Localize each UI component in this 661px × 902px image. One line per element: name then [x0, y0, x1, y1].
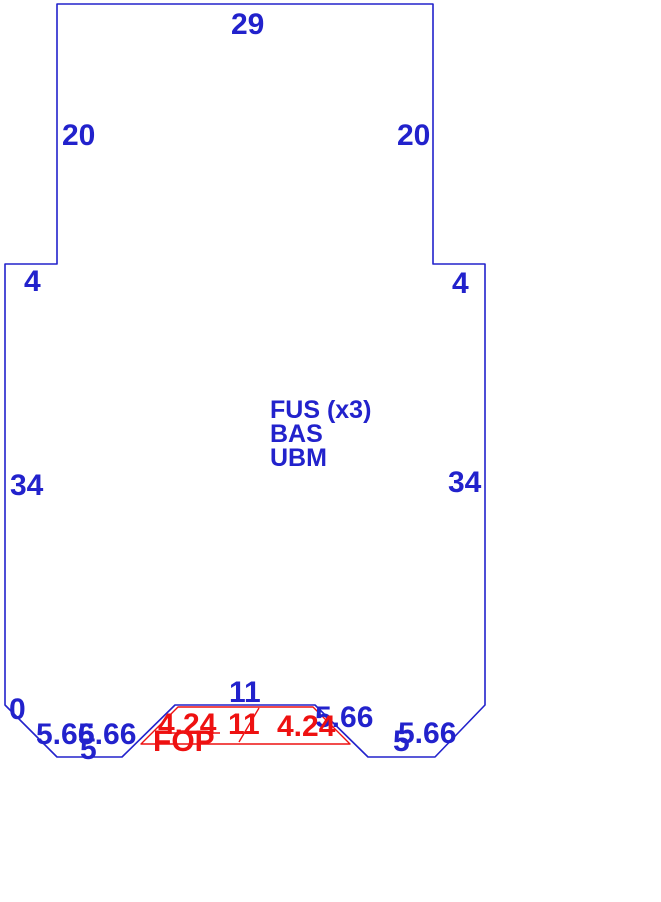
dim-top-29: 29 [231, 10, 264, 40]
drawing-canvas: 292020443434FUS (x3)BASUBM05.665.665115.… [0, 0, 661, 902]
dim-bottom-left-5: 5 [80, 735, 97, 765]
dim-right-20: 20 [397, 121, 430, 151]
dim-zero: 0 [9, 695, 26, 725]
dim-right-34: 34 [448, 468, 481, 498]
dim-fop-right-424: 4.24 [277, 712, 335, 742]
label-layer: 292020443434FUS (x3)BASUBM05.665.665115.… [0, 0, 661, 902]
dim-notch-top-11: 11 [229, 678, 261, 708]
dim-right-step-4: 4 [452, 269, 469, 299]
dim-left-34: 34 [10, 471, 43, 501]
layer-text-ubm: UBM [270, 446, 327, 471]
dim-left-20: 20 [62, 121, 95, 151]
dim-left-step-4: 4 [24, 267, 41, 297]
layer-text-fop: FOP [153, 727, 215, 757]
dim-chamfer-right-566: 5.66 [398, 719, 456, 749]
dim-fop-top-11: 11 [228, 710, 260, 740]
